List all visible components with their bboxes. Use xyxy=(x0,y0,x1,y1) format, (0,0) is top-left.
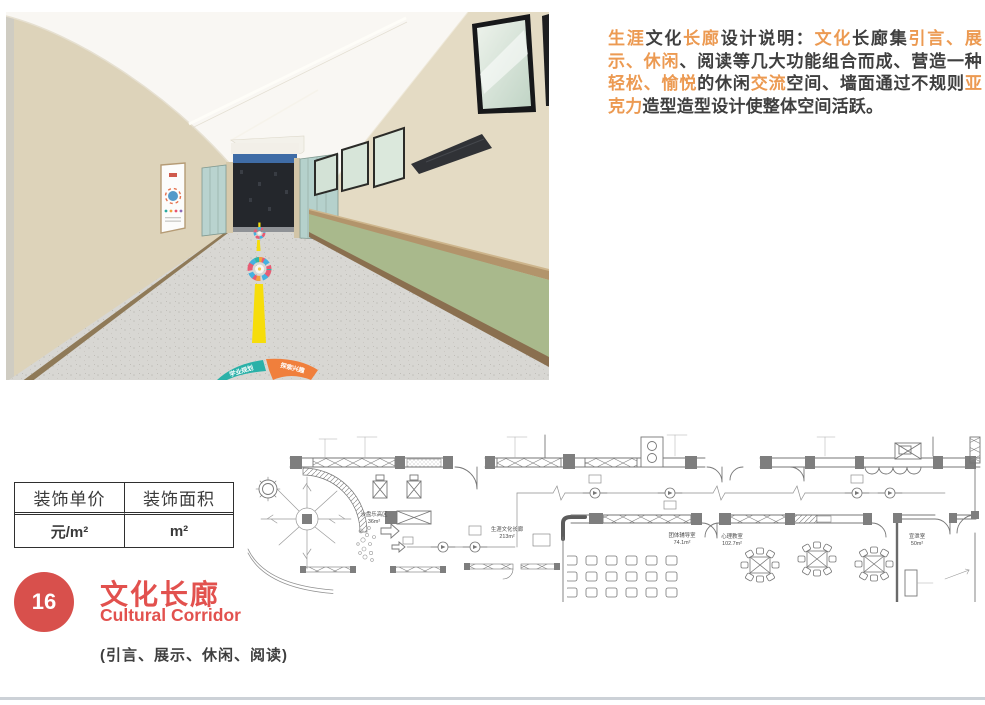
description-segment: 轻松、愉悦 xyxy=(608,74,697,93)
room-area-psych-classroom: 102.7m² xyxy=(722,541,742,547)
plan-linework xyxy=(248,435,980,602)
room-label-group-counseling: 团体辅导室 xyxy=(669,531,697,539)
plan-glass-walls xyxy=(300,534,560,579)
chair-grid xyxy=(567,551,685,598)
plant-symbol xyxy=(261,477,351,569)
floor-plan: 沙盘乐高区 36m² 生涯文化长廊 213m² 团体辅导室 74.1m² 心理教… xyxy=(245,427,985,602)
room-label-career-corridor: 生涯文化长廊 xyxy=(491,525,524,533)
cost-table-header-unit-price: 装饰单价 xyxy=(15,483,124,515)
screen-box xyxy=(533,534,550,546)
direction-arrow xyxy=(381,524,399,538)
room-area-group-counseling: 74.1m² xyxy=(674,540,691,546)
curved-wall xyxy=(303,468,367,532)
description-segment: 空间、墙面通过不规则 xyxy=(786,74,964,93)
room-area-sand-table: 36m² xyxy=(368,519,380,525)
description-segment: 的休闲 xyxy=(697,74,751,93)
cost-table-header-area: 装饰面积 xyxy=(124,483,233,515)
floor-plan-drawing: 沙盘乐高区 36m² 生涯文化长廊 213m² 团体辅导室 74.1m² 心理教… xyxy=(245,427,985,602)
equipment-box xyxy=(905,570,917,596)
description-segment: 长廊 xyxy=(683,29,721,48)
room-label-psych-classroom: 心理教室 xyxy=(721,532,743,540)
room-psych-classroom xyxy=(705,513,893,582)
description-segment: 造型造型设计使整体空间活跃。 xyxy=(642,97,883,116)
room-label-sand-table: 沙盘乐高区 xyxy=(361,510,389,518)
description-segment: 文化 xyxy=(815,29,853,48)
cost-table-value-unit-price: 元/m² xyxy=(15,515,124,547)
glass-partition-left xyxy=(202,165,226,236)
blue-band xyxy=(233,154,297,164)
section-subtitle: Cultural Corridor xyxy=(100,605,241,626)
room-area-venting: 50m² xyxy=(911,541,923,547)
corridor-photo-rendering: 学业规划 探索兴趣 xyxy=(6,12,549,380)
room-venting xyxy=(893,513,976,602)
plan-lobby-zone xyxy=(248,468,431,594)
design-description: 生涯文化长廊设计说明：文化长廊集引言、展示、休闲、阅读等几大功能组合而成、营造一… xyxy=(608,28,982,118)
left-wall-edge xyxy=(6,12,14,380)
wall-poster xyxy=(161,163,185,233)
page-bottom-rule xyxy=(0,697,985,700)
plan-top-wall xyxy=(290,435,980,489)
flower-symbol xyxy=(256,477,280,501)
room-area-career-corridor: 213m² xyxy=(499,534,514,540)
section-number-badge: 16 xyxy=(14,572,74,632)
room-label-venting: 宣泄室 xyxy=(909,532,926,540)
room-group-counseling xyxy=(563,513,717,602)
description-segment: 、阅读等几大功能组合而成、营造一种 xyxy=(679,52,982,71)
cost-table-value-area: m² xyxy=(124,515,233,547)
corridor-photo: 学业规划 探索兴趣 xyxy=(6,12,549,380)
description-segment: 长廊集 xyxy=(852,29,908,48)
description-segment: 设计说明： xyxy=(721,29,815,48)
description-segment: 文化 xyxy=(646,29,684,48)
section-note: (引言、展示、休闲、阅读) xyxy=(100,644,288,665)
description-segment: 交流 xyxy=(751,74,787,93)
description-segment: 生涯 xyxy=(608,29,646,48)
cost-table: 装饰单价 装饰面积 元/m² m² xyxy=(14,482,234,548)
